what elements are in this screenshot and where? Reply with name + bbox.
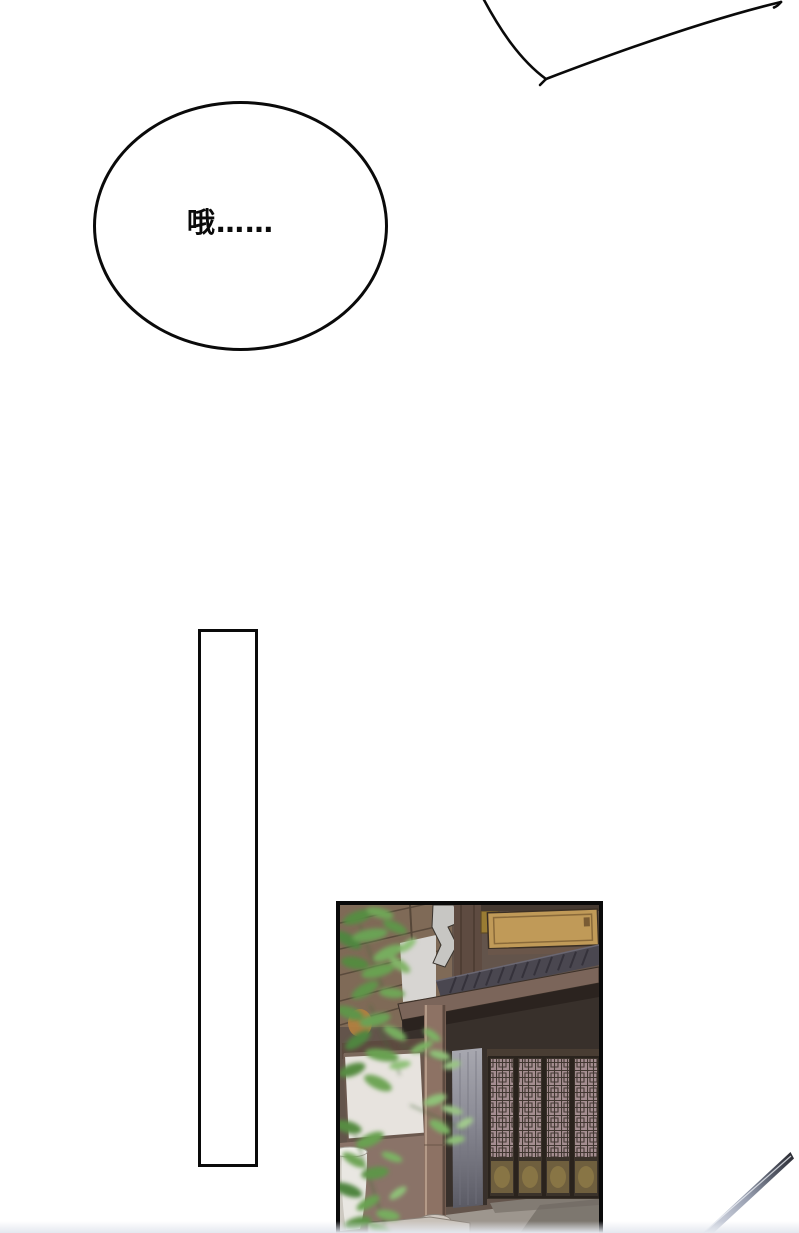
blade-highlight [706, 1156, 792, 1231]
bubble-tail-tick [540, 79, 546, 85]
oh-speech-bubble: 哦…… [93, 101, 388, 351]
manga-page: 哦…… [0, 0, 799, 1233]
bubble-outline-left [483, 0, 546, 79]
stone-pillar [452, 1048, 483, 1208]
vertical-text-box [198, 629, 258, 1167]
lattice-doors [487, 1049, 599, 1199]
storefront-illustration [340, 905, 599, 1233]
next-panel-strip [0, 1221, 799, 1233]
story-panel [336, 901, 603, 1233]
door-panel [517, 1057, 543, 1197]
door-panel [573, 1057, 599, 1197]
door-panel [545, 1057, 571, 1197]
bubble-end-hook [774, 2, 781, 8]
bubble-outline-right [546, 2, 781, 79]
speech-text: 哦…… [187, 201, 274, 241]
shop-signboard [487, 909, 598, 949]
door-panel [489, 1057, 515, 1197]
